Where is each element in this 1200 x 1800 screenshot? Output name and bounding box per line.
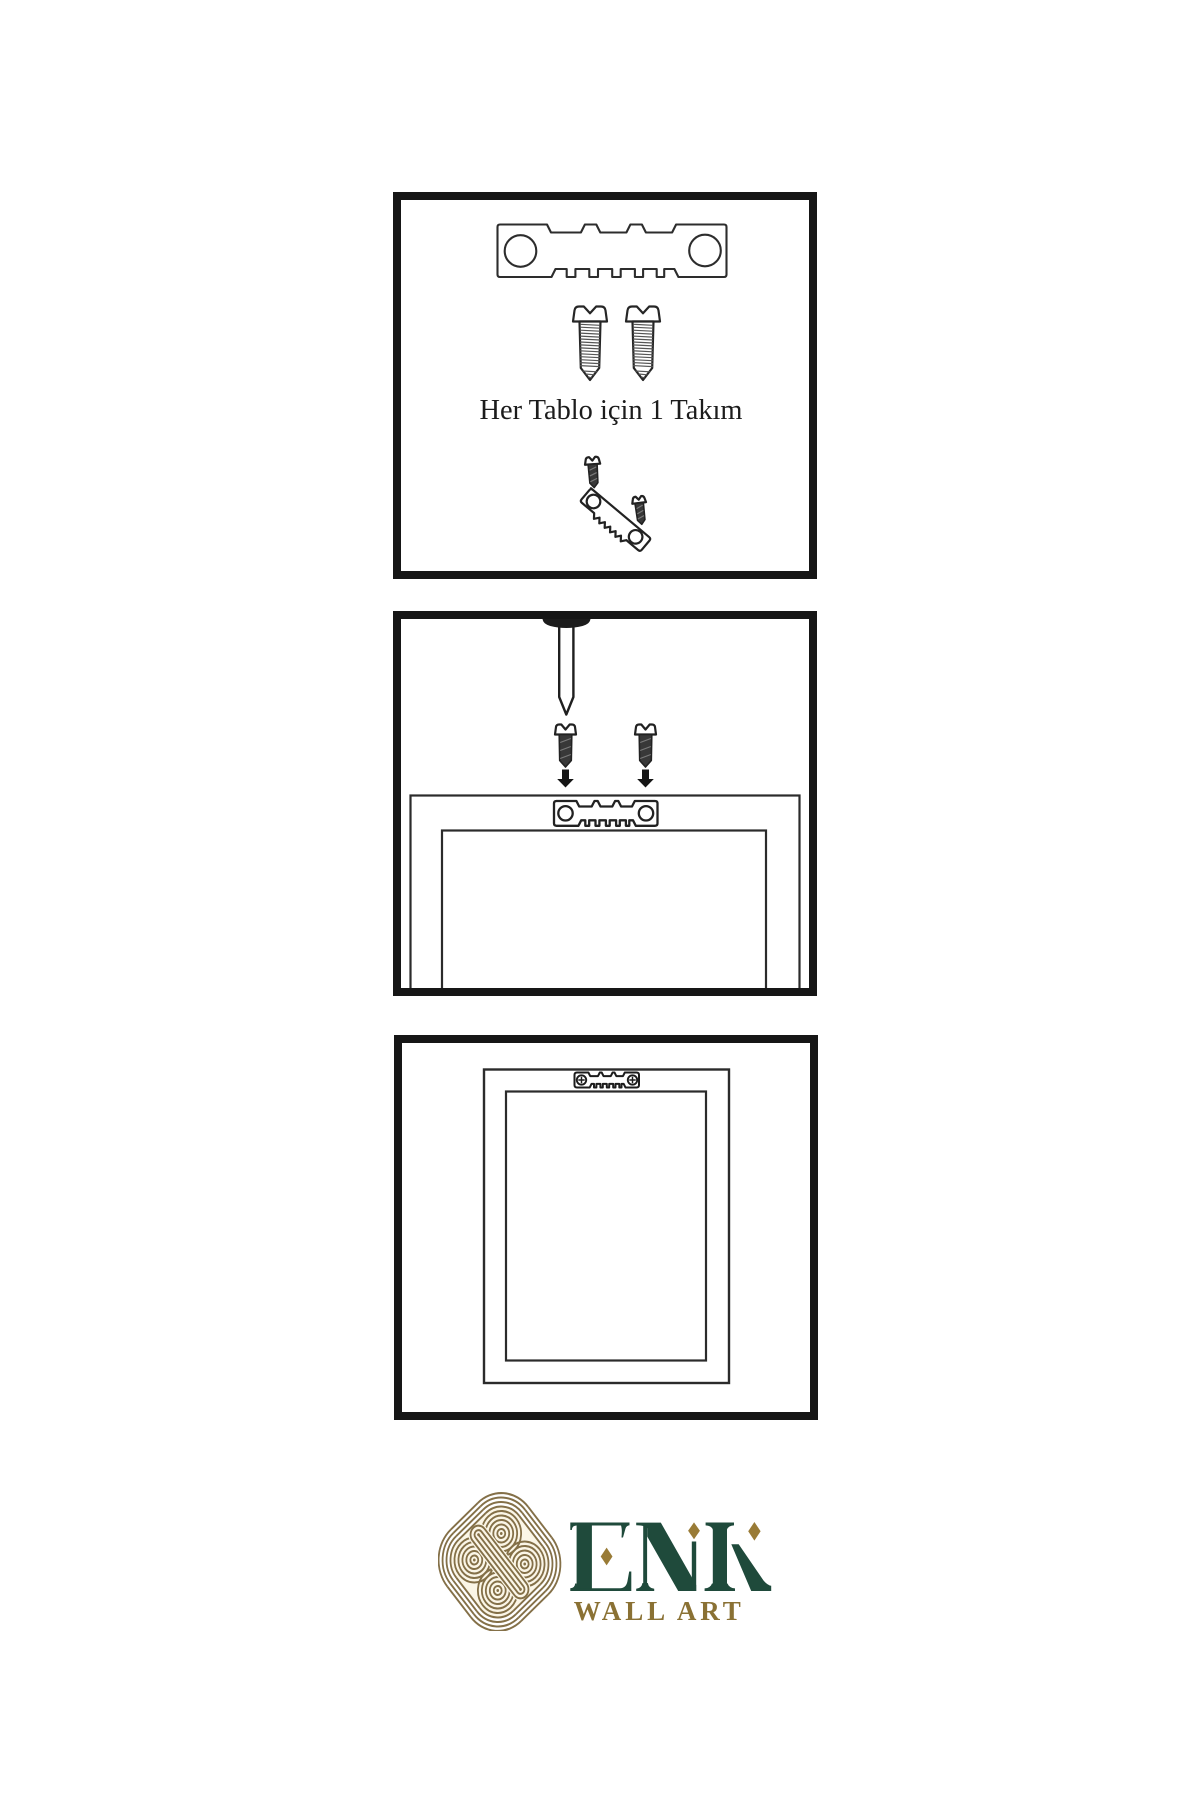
svg-text:WALL ART: WALL ART (574, 1596, 741, 1626)
svg-text:Her Tablo için 1 Takım: Her Tablo için 1 Takım (480, 394, 743, 426)
